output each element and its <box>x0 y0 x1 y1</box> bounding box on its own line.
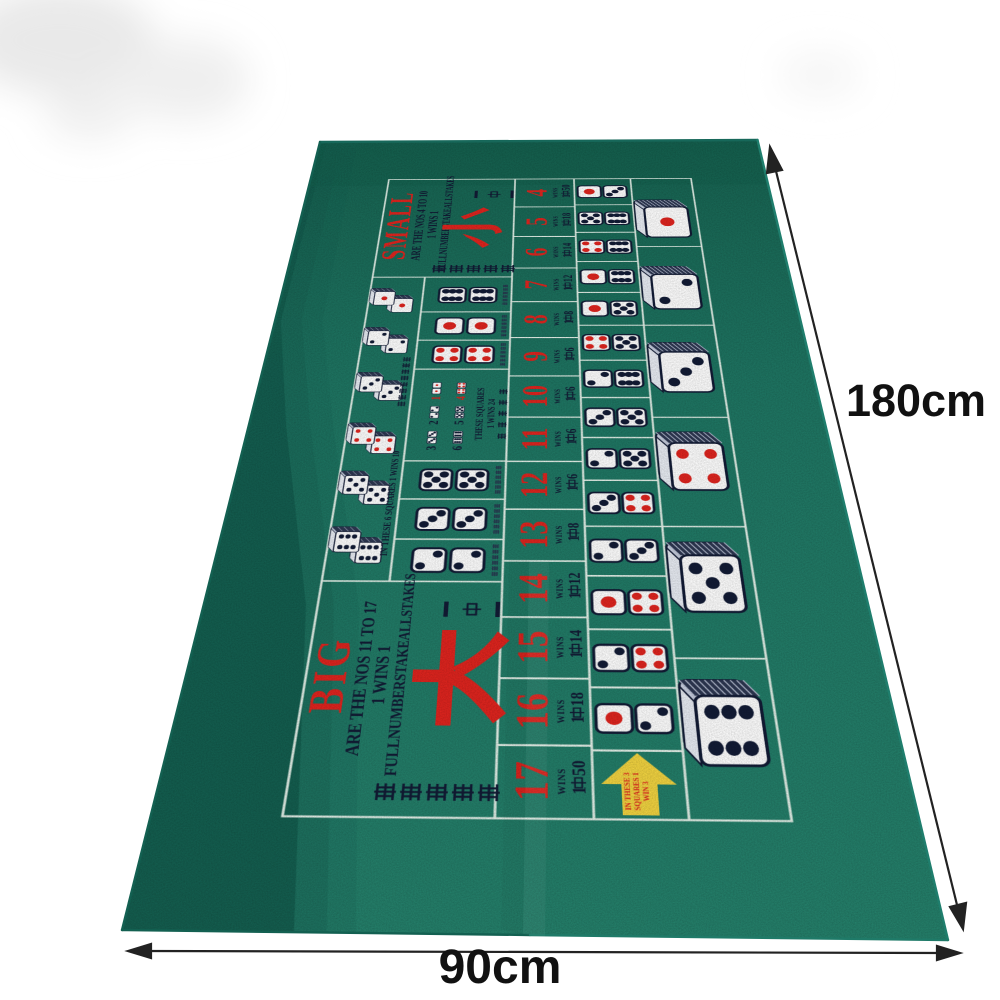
svg-text:180cm: 180cm <box>846 375 986 426</box>
svg-text:90cm: 90cm <box>439 941 562 994</box>
